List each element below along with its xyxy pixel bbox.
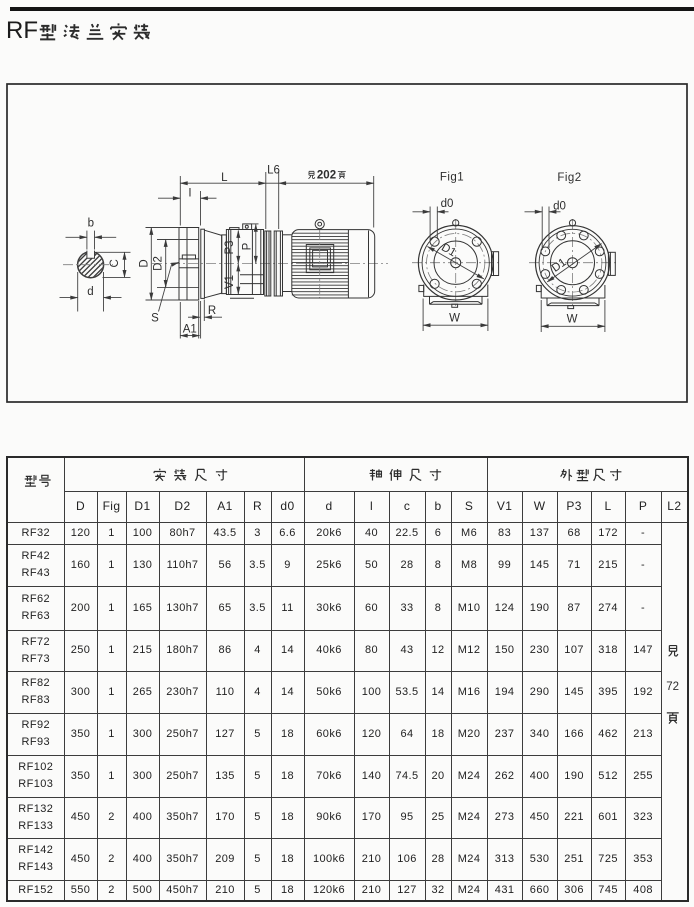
svg-text:L6: L6 <box>267 164 280 176</box>
svg-text:Fig1: Fig1 <box>440 172 464 184</box>
svg-text:S: S <box>151 313 159 325</box>
svg-text:d: d <box>87 286 93 298</box>
svg-text:d0: d0 <box>553 201 566 213</box>
svg-text:P3: P3 <box>224 240 236 254</box>
svg-text:d0: d0 <box>441 198 454 210</box>
svg-text:D: D <box>139 259 151 267</box>
svg-text:P: P <box>242 242 254 250</box>
svg-text:R: R <box>208 305 216 317</box>
svg-text:D1: D1 <box>439 242 458 260</box>
svg-text:Fig2: Fig2 <box>557 172 581 184</box>
svg-text:D2: D2 <box>153 256 165 271</box>
svg-text:C: C <box>109 259 121 267</box>
svg-text:I: I <box>188 188 191 200</box>
svg-text:L: L <box>221 172 228 184</box>
svg-text:W: W <box>567 314 578 326</box>
svg-text:V1: V1 <box>224 275 236 289</box>
svg-text:202: 202 <box>317 170 336 182</box>
svg-text:b: b <box>88 218 94 230</box>
svg-text:72: 72 <box>666 681 679 693</box>
svg-text:A1: A1 <box>183 324 197 336</box>
svg-text:W: W <box>449 313 460 325</box>
